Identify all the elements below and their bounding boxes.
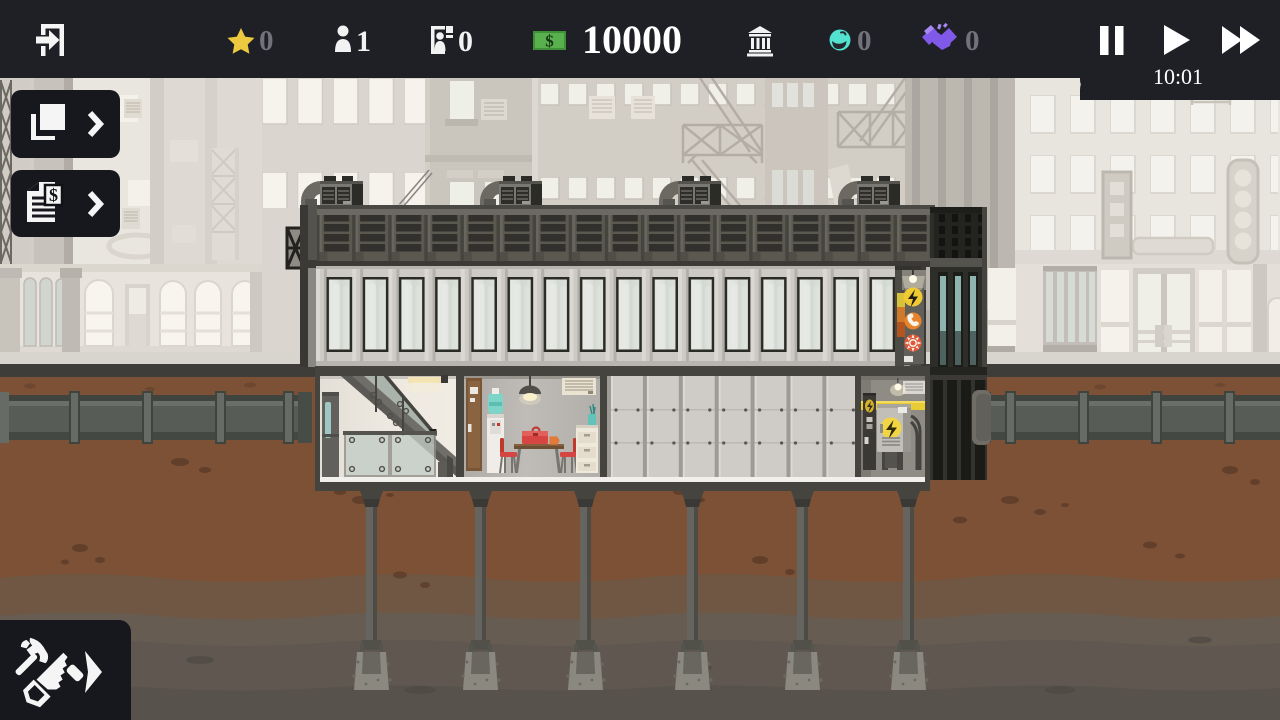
svg-text:1: 1 [356,25,371,58]
svg-text:10:01: 10:01 [1153,64,1203,89]
svg-text:0: 0 [458,25,473,58]
svg-text:0: 0 [965,25,980,57]
svg-text:$: $ [545,32,554,51]
svg-text:0: 0 [259,25,274,57]
svg-text:0: 0 [857,25,872,57]
svg-text:$: $ [49,185,58,205]
svg-text:10000: 10000 [582,17,682,62]
